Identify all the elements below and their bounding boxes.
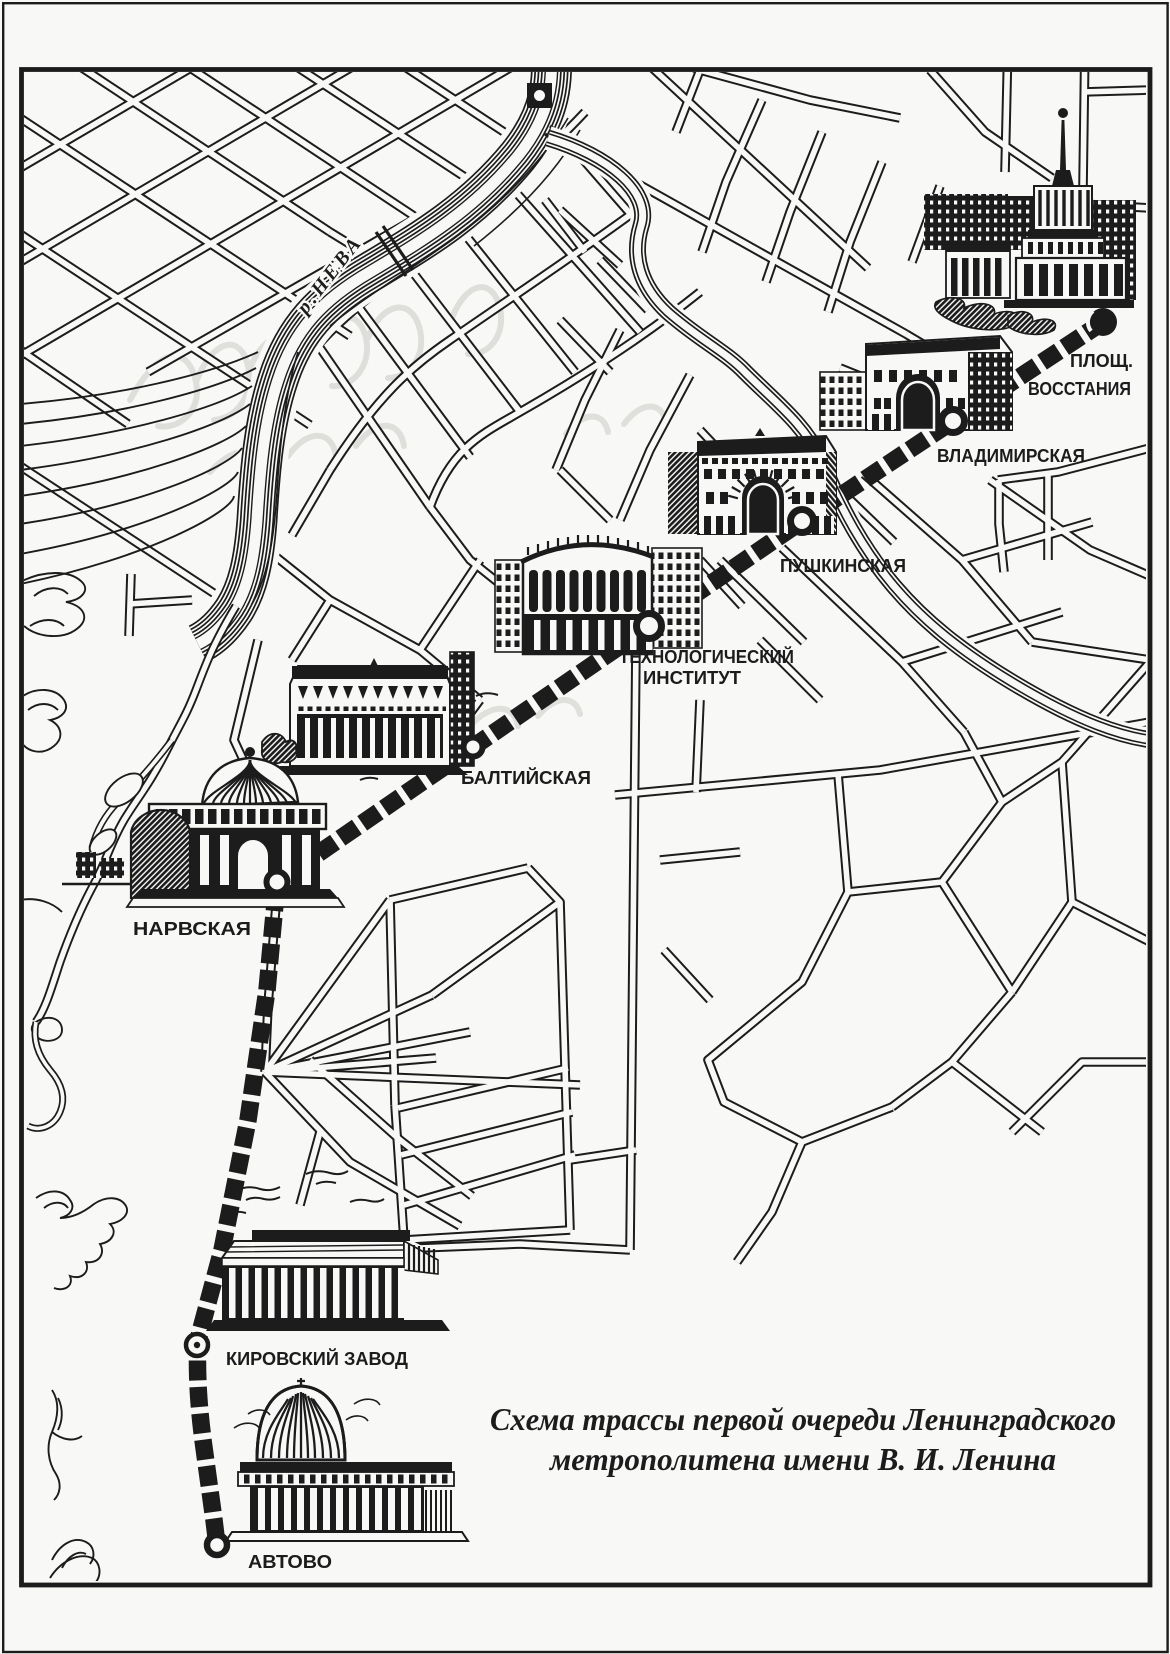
svg-text:КИРОВСКИЙ ЗАВОД: КИРОВСКИЙ ЗАВОД bbox=[226, 1348, 408, 1369]
svg-text:метрополитена имени В. И. Лени: метрополитена имени В. И. Ленина bbox=[548, 1441, 1056, 1477]
svg-text:НАРВСКАЯ: НАРВСКАЯ bbox=[133, 919, 251, 939]
svg-text:Схема трассы первой очереди Ле: Схема трассы первой очереди Ленинградско… bbox=[490, 1401, 1116, 1437]
svg-text:АВТОВО: АВТОВО bbox=[248, 1552, 332, 1572]
svg-text:ВЛАДИМИРСКАЯ: ВЛАДИМИРСКАЯ bbox=[937, 445, 1085, 466]
svg-text:ПЛОЩ.: ПЛОЩ. bbox=[1070, 350, 1133, 371]
svg-text:ТЕХНОЛОГИЧЕСКИЙ: ТЕХНОЛОГИЧЕСКИЙ bbox=[619, 646, 794, 667]
svg-text:ВОССТАНИЯ: ВОССТАНИЯ bbox=[1028, 378, 1131, 399]
svg-text:ИНСТИТУТ: ИНСТИТУТ bbox=[643, 668, 741, 688]
svg-text:ПУШКИНСКАЯ: ПУШКИНСКАЯ bbox=[780, 556, 906, 576]
svg-text:БАЛТИЙСКАЯ: БАЛТИЙСКАЯ bbox=[461, 767, 591, 788]
